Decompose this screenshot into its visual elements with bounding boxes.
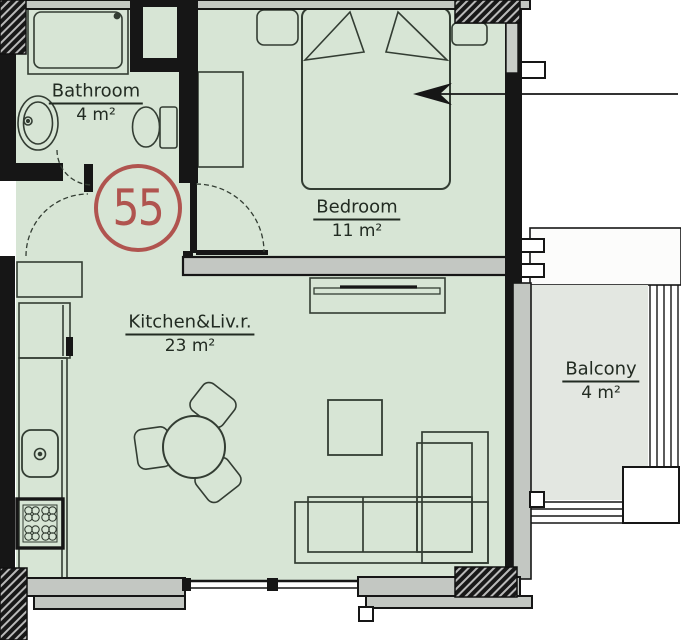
bedroom-door-leaf	[190, 182, 197, 253]
wall-right-mid	[505, 228, 522, 285]
bedroom-area: 11 m²	[332, 221, 382, 241]
wall-top	[0, 0, 530, 9]
unit-number-badge: 55	[94, 164, 182, 252]
dining-table	[163, 416, 225, 478]
bedroom-label: Bedroom	[313, 197, 400, 218]
floor-plan: Bathroom 4 m² Bedroom 11 m² Kitchen&Liv.…	[0, 0, 681, 640]
wall-bathroom-bottom	[0, 163, 63, 181]
wall-bottom-right-outer	[366, 596, 532, 608]
wall-tab	[521, 264, 544, 277]
balcony-label: Balcony	[562, 359, 639, 380]
bathroom-area: 4 m²	[76, 105, 116, 125]
bedroom-door-threshold	[196, 250, 268, 255]
window-mullion	[267, 578, 278, 591]
column-bottom-right	[455, 567, 517, 597]
balcony-area: 4 m²	[581, 383, 621, 403]
kitchen-living-label: Kitchen&Liv.r.	[125, 312, 254, 333]
nightstand-right	[452, 23, 487, 45]
bedroom-window	[506, 23, 518, 73]
wardrobe	[198, 72, 243, 167]
wall-bathroom-bedroom	[179, 0, 198, 183]
bathroom-name: Bathroom	[49, 81, 143, 105]
column-bottom-left	[0, 568, 27, 640]
balcony-name: Balcony	[562, 359, 639, 383]
wall-bottom-left	[26, 578, 185, 596]
wall-left-lower	[0, 256, 15, 568]
nightstand-left	[257, 10, 298, 45]
bathroom-label: Bathroom	[49, 81, 143, 102]
wall-tab	[521, 62, 545, 78]
kitchen-living-name: Kitchen&Liv.r.	[125, 312, 254, 336]
column-top-right	[455, 0, 520, 23]
unit-number: 55	[113, 183, 164, 233]
bedroom-name: Bedroom	[313, 197, 400, 221]
wall-tab	[359, 607, 373, 621]
wall-right-lower-core	[513, 283, 531, 579]
wall-bottom-left-outer	[34, 596, 185, 609]
balcony-top-band	[530, 228, 681, 285]
bathroom-door-stub	[84, 164, 93, 192]
window-mullion	[182, 578, 191, 591]
wall-tab	[521, 239, 544, 252]
wall-tab	[530, 492, 544, 507]
kitchen-living-area: 23 m²	[165, 336, 215, 356]
column-top-left	[0, 0, 26, 54]
shaft-interior	[143, 7, 177, 58]
balcony-post	[623, 467, 679, 523]
wall-bedroom-kitchen	[183, 257, 510, 275]
